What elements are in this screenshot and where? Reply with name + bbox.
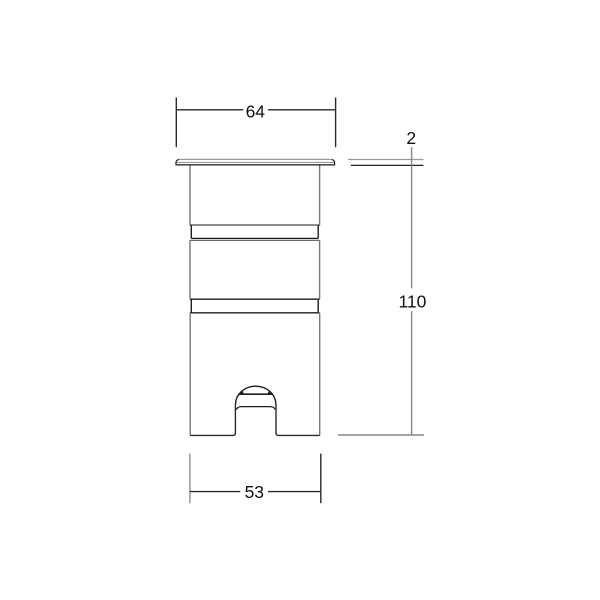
svg-text:64: 64: [246, 101, 266, 121]
svg-text:2: 2: [406, 128, 416, 148]
svg-text:53: 53: [245, 482, 264, 502]
svg-text:110: 110: [398, 292, 426, 312]
